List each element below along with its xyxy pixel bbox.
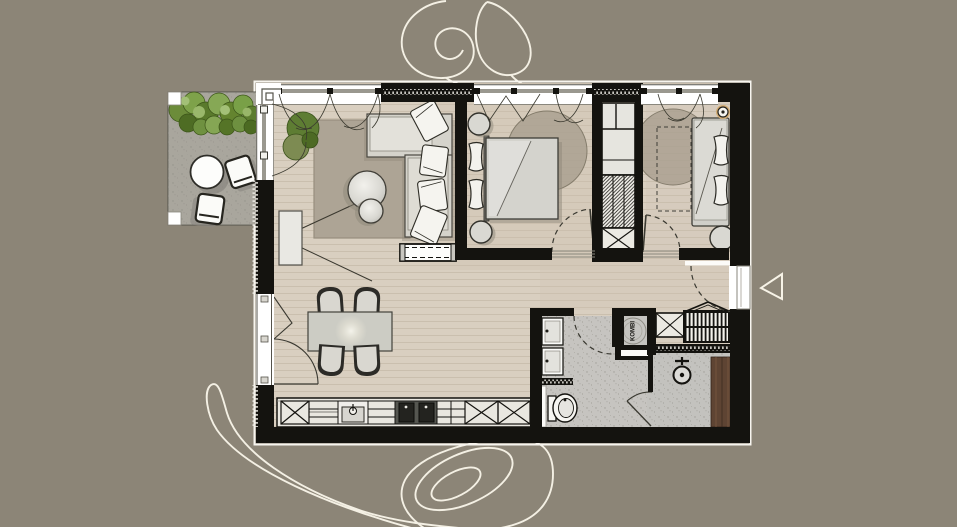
svg-text:KOMBI: KOMBI	[631, 321, 637, 341]
